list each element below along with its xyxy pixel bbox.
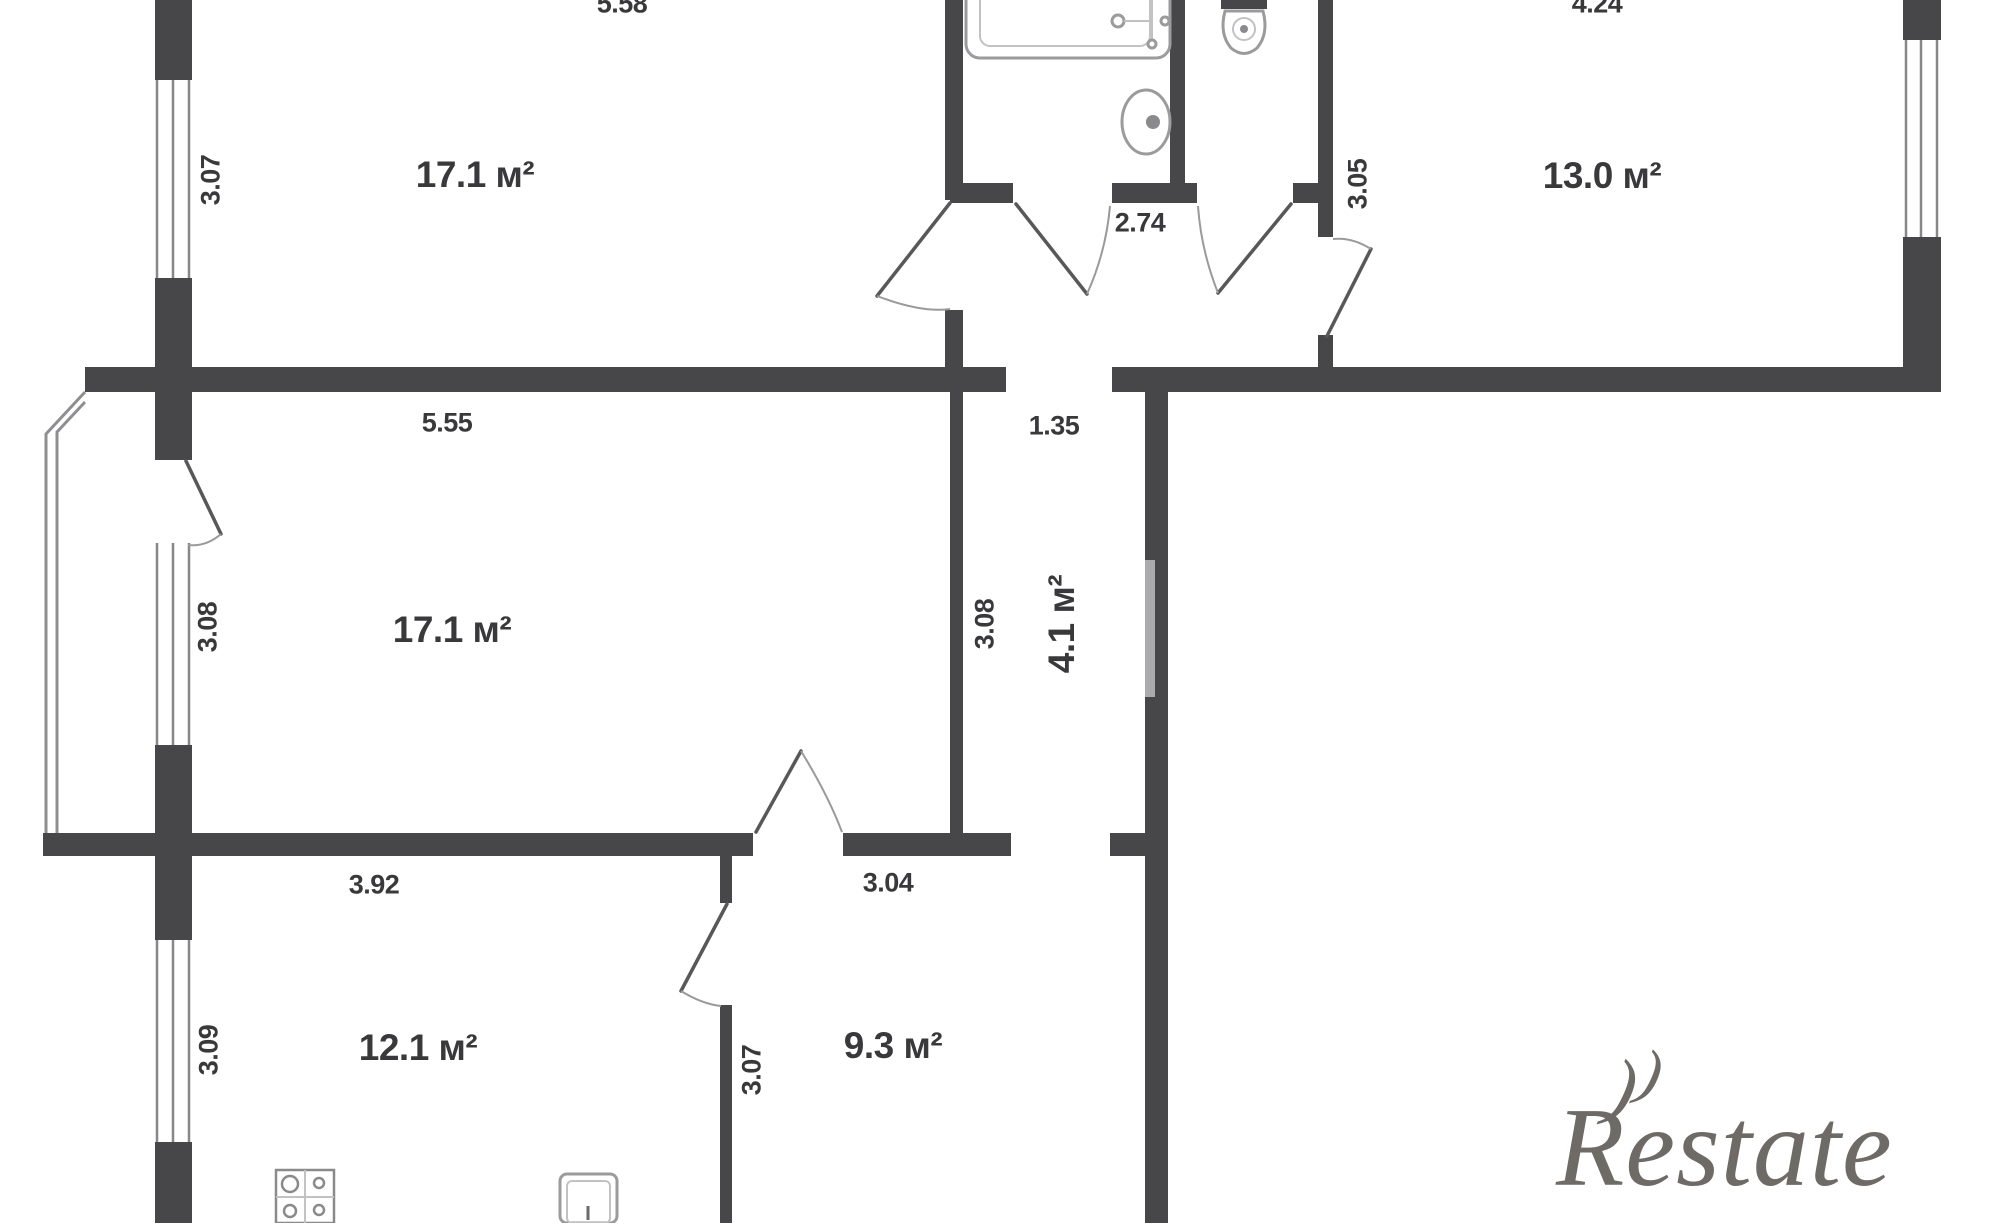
door-kitchen [681,904,727,1006]
kitchen-sink [560,1174,617,1223]
door-bedroom-right [1327,239,1371,336]
dim-top-room-height: 3.07 [196,155,227,206]
door-top-left-room [877,203,950,310]
room-label-living-mid: 17.1 м² [393,609,511,651]
balcony-outline [46,392,85,833]
entrance-door [1145,560,1155,697]
door-wc [1198,204,1291,293]
toilet [1221,0,1267,54]
dim-room-bottom-height: 3.07 [737,1045,768,1096]
window-kitchen [157,940,189,1142]
room-label-living-top: 17.1 м² [416,154,534,196]
bathtub [966,0,1170,58]
door-bath [1016,204,1110,294]
dim-corridor-height: 3.08 [970,599,1001,650]
watermark-text: Restate [1556,1084,1893,1213]
dim-bedroom-right-width: 4.24 [1572,0,1623,20]
stove [276,1170,334,1223]
washbasin [1122,90,1170,154]
dim-bathroom-width: 2.74 [1115,208,1166,239]
dim-bedroom-right-height: 3.05 [1343,159,1374,210]
window-right [1906,40,1937,237]
room-label-kitchen: 12.1 м² [359,1027,477,1069]
room-label-bedroom-right: 13.0 м² [1543,155,1661,197]
dim-top-room-width: 5.58 [597,0,648,20]
room-label-corridor: 4.1 м² [1041,575,1083,673]
dim-kitchen-width: 3.92 [349,870,400,901]
window-middle-left [157,543,189,745]
dim-living-mid-width: 5.55 [422,408,473,439]
dim-room-bottom-width: 3.04 [863,868,914,899]
dim-living-mid-height: 3.08 [193,602,224,653]
restate-watermark: ) ) Restate [1548,1066,2000,1226]
door-living-to-bottom-room [756,751,842,832]
dim-kitchen-height: 3.09 [194,1025,225,1076]
room-label-bottom: 9.3 м² [844,1025,942,1067]
window-top-left [157,80,189,278]
balcony-door [186,461,221,545]
dim-corridor-width: 1.35 [1029,411,1080,442]
